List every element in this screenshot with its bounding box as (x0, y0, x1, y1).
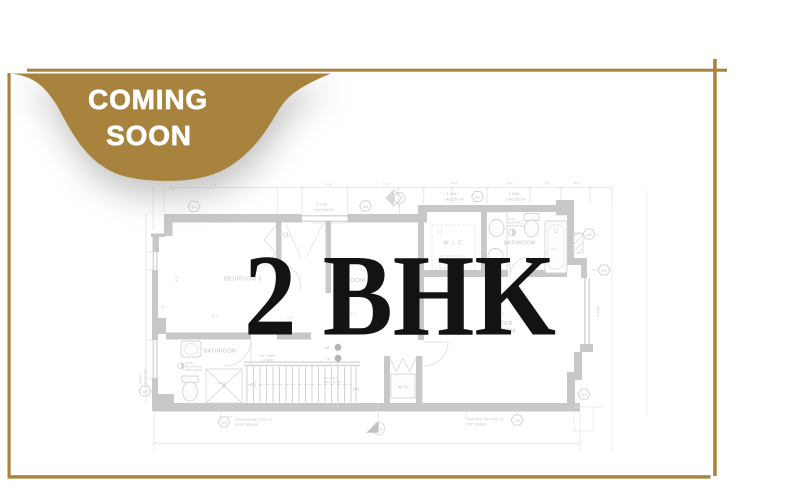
svg-text:NOTE:: NOTE: (507, 217, 515, 221)
svg-text:BATHROOM: BATHROOM (204, 349, 236, 355)
svg-text:W3: W3 (581, 393, 586, 397)
svg-text:4'-6": 4'-6" (452, 182, 460, 186)
svg-text:VENTILATION: VENTILATION (185, 368, 202, 372)
svg-text:W3: W3 (142, 390, 147, 394)
svg-text:(4x3.5x1/4): (4x3.5x1/4) (144, 369, 148, 386)
svg-text:2-2x8+: 2-2x8+ (139, 374, 143, 384)
svg-text:W / D: W / D (398, 385, 409, 390)
svg-text:W3: W3 (514, 419, 519, 423)
svg-text:L4x3.5x1/4: L4x3.5x1/4 (444, 197, 464, 202)
svg-text:2-2x8+: 2-2x8+ (508, 191, 521, 196)
svg-text:7'-6": 7'-6" (158, 305, 166, 309)
svg-text:(15) T @ 10": (15) T @ 10" (324, 380, 341, 384)
svg-text:9'-6": 9'-6" (175, 274, 179, 282)
svg-text:2-2x8+: 2-2x8+ (446, 191, 459, 196)
svg-text:12'-6": 12'-6" (211, 314, 220, 318)
svg-text:W3: W3 (221, 421, 226, 425)
svg-text:2-2x10: 2-2x10 (596, 306, 600, 317)
svg-text:L4x3.5x1/4: L4x3.5x1/4 (314, 207, 334, 212)
svg-text:W3: W3 (475, 196, 480, 200)
svg-text:6'-8": 6'-8" (507, 182, 515, 186)
svg-text:SOON: SOON (106, 120, 192, 151)
svg-text:4'-0": 4'-0" (574, 182, 582, 186)
svg-text:SLOPE: SLOPE (217, 381, 226, 385)
svg-text:PROVIDE 5/8" TYPE 'X': PROVIDE 5/8" TYPE 'X' (467, 418, 504, 422)
svg-text:MECHANICAL: MECHANICAL (507, 221, 525, 225)
svg-text:GYPS. BOARD: GYPS. BOARD (235, 423, 259, 427)
svg-text:W3: W3 (191, 206, 196, 210)
svg-text:7'-2": 7'-2" (383, 183, 391, 187)
svg-text:VENTILATION: VENTILATION (507, 224, 524, 228)
svg-text:2-2x8+: 2-2x8+ (316, 202, 329, 207)
svg-text:MECHANICAL: MECHANICAL (185, 365, 203, 369)
svg-text:4'-6": 4'-6" (326, 183, 334, 187)
svg-text:DN: DN (353, 387, 360, 392)
svg-text:GYP. BOARD: GYP. BOARD (466, 423, 487, 427)
svg-text:2 BHK: 2 BHK (244, 232, 556, 361)
svg-text:NOTE:: NOTE: (185, 361, 193, 365)
svg-text:L4x3.5x1/4: L4x3.5x1/4 (506, 197, 526, 202)
svg-text:2'-8": 2'-8" (544, 182, 552, 186)
svg-text:W3: W3 (586, 233, 591, 237)
svg-text:W3: W3 (601, 269, 606, 273)
svg-text:EL: EL (380, 428, 384, 432)
svg-text:W3: W3 (363, 205, 368, 209)
svg-text:PROVIDE 5/8" TYPE 'X': PROVIDE 5/8" TYPE 'X' (235, 418, 272, 422)
svg-text:COMING: COMING (88, 84, 208, 115)
